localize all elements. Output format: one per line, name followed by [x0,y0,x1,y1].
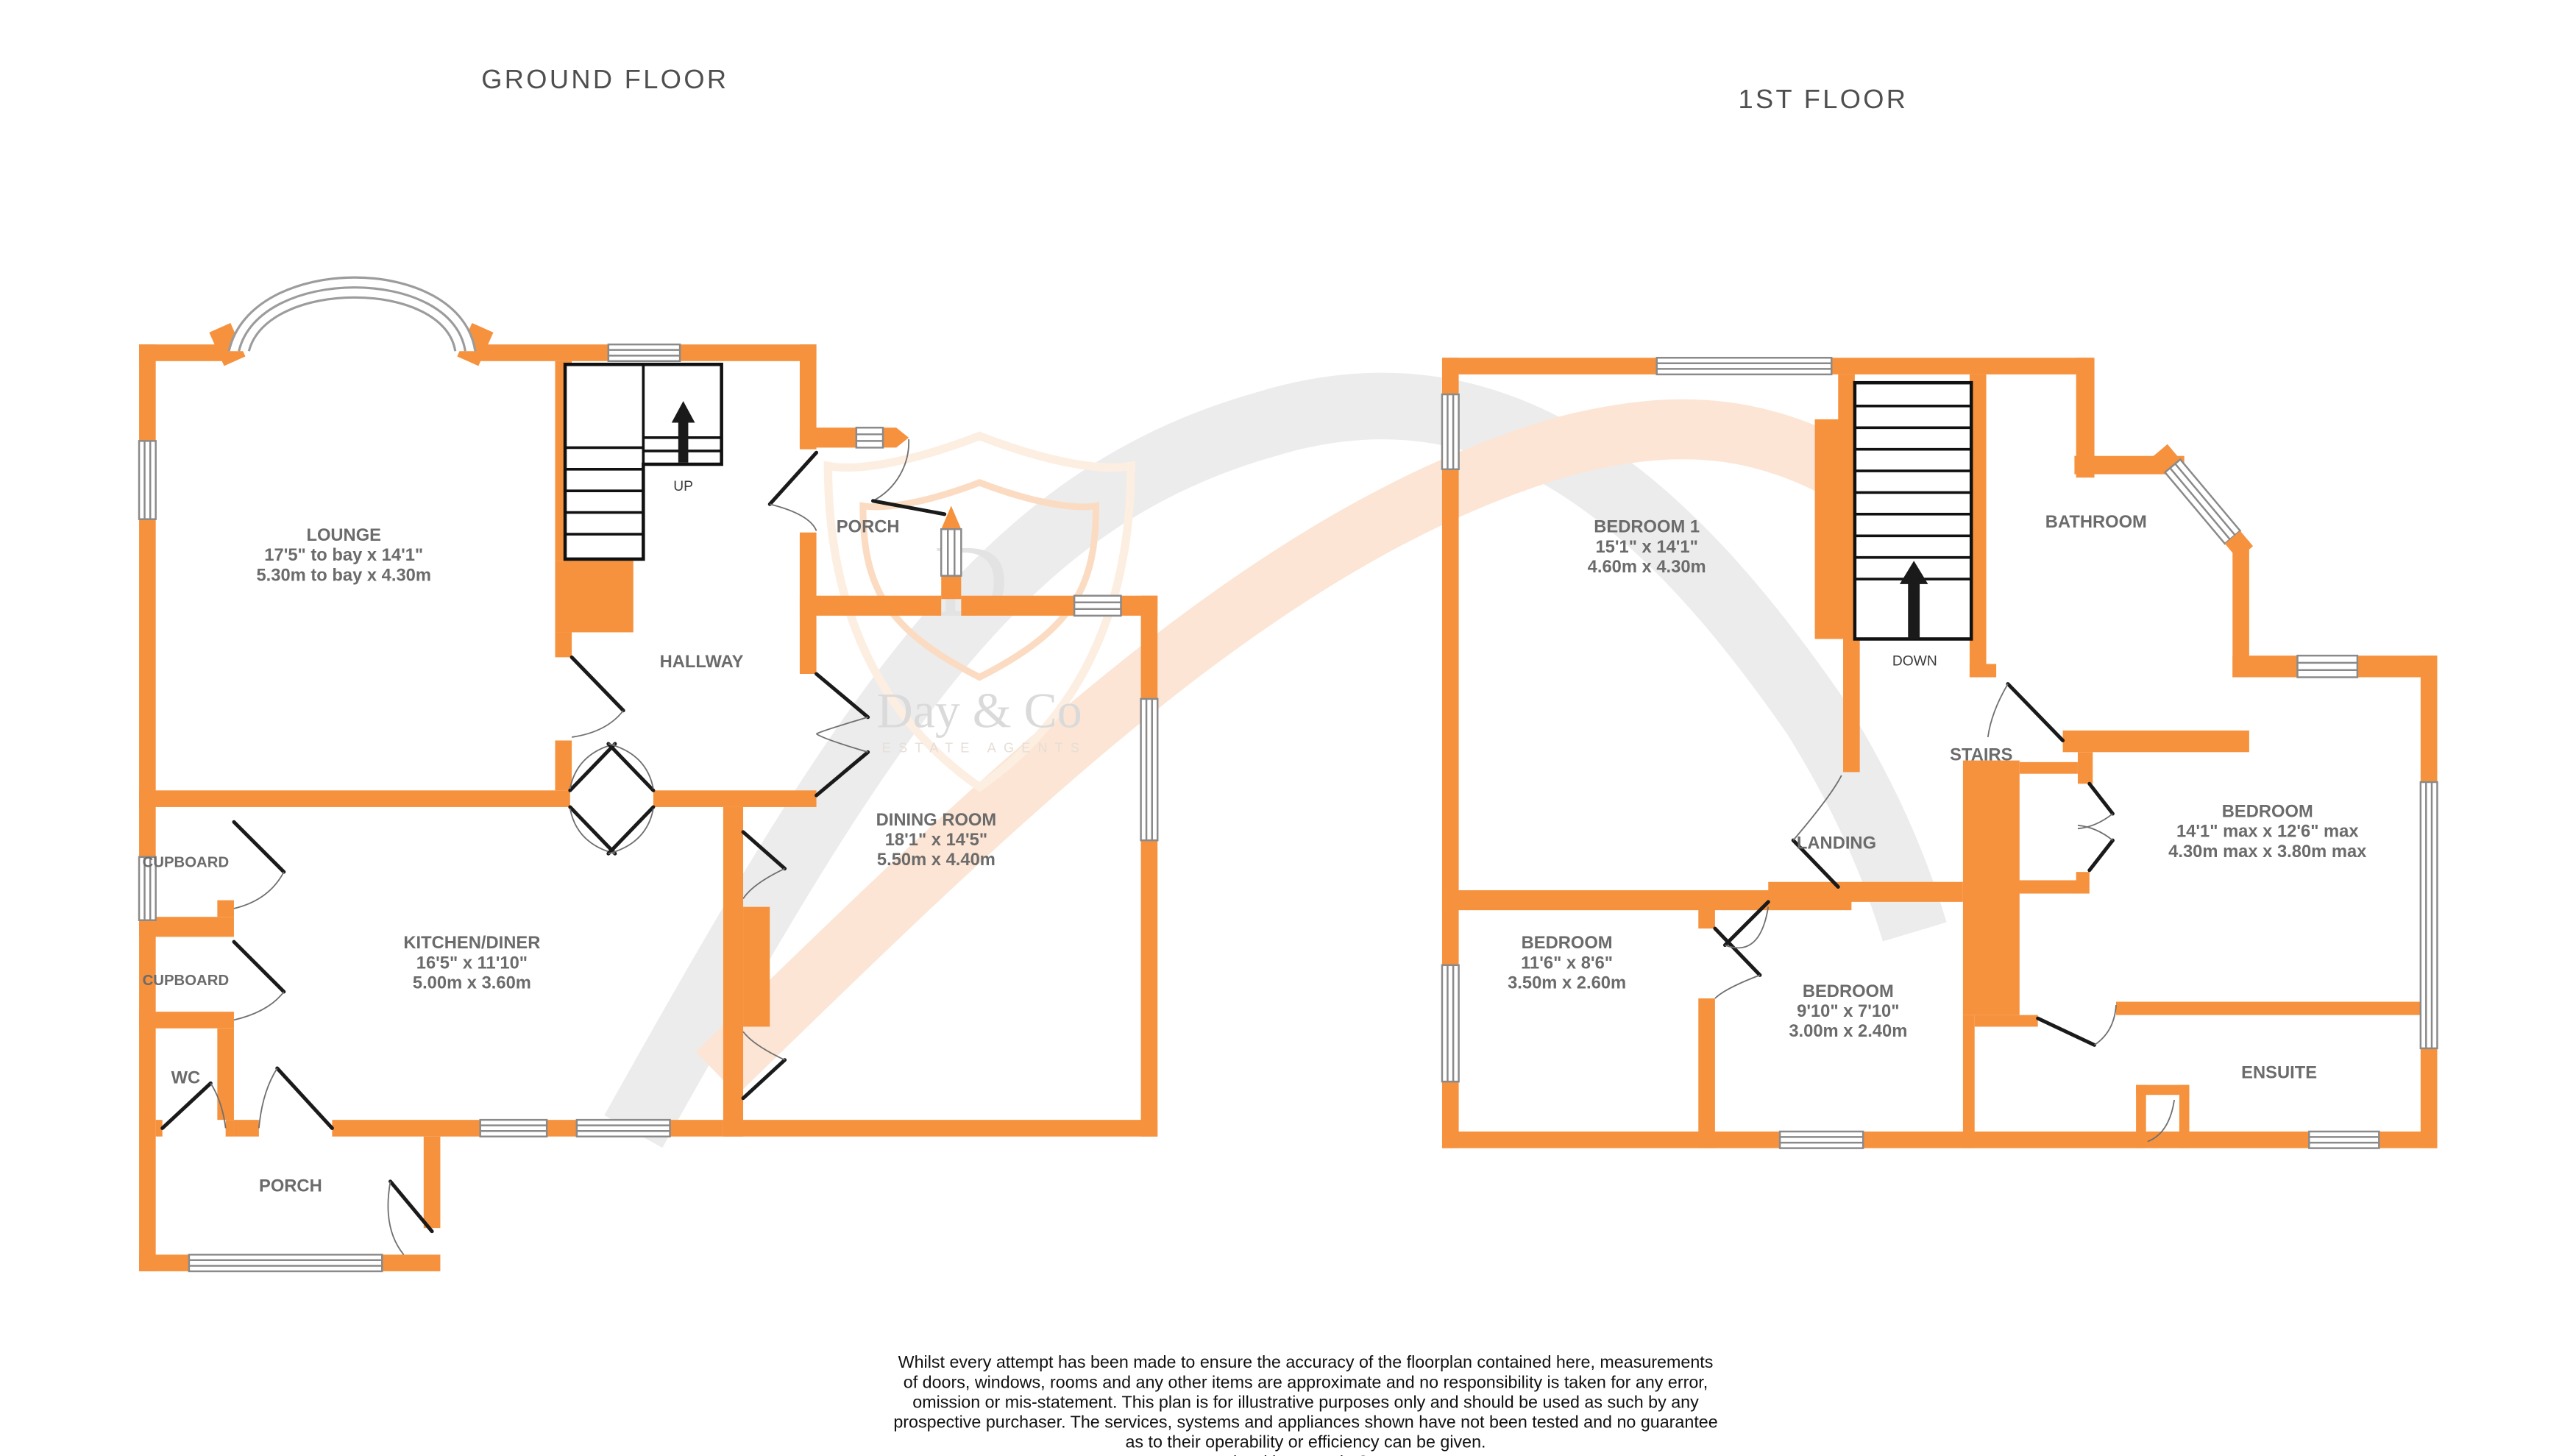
window-ensuite-bottom [2309,1132,2379,1148]
room-label-kitchen: KITCHEN/DINER [403,934,540,953]
window-kitchen-bottom-b [577,1120,670,1137]
room-dims-bedroom1-imperial: 15'1" x 14'1" [1595,538,1697,557]
room-dims-kitchen-imperial: 16'5" x 11'10" [416,953,528,973]
room-label-bathroom: BATHROOM [2045,513,2147,532]
disclaimer-line-1: Whilst every attempt has been made to en… [898,1352,1714,1371]
window-dining-right [1141,699,1158,840]
floorplan-page: D Day & Co ESTATE AGENTS GROUND FLOOR 1S… [0,0,2573,1456]
room-dims-bedroom-left-metric: 3.50m x 2.60m [1508,973,1626,992]
room-dims-dining-imperial: 18'1" x 14'5" [885,831,987,850]
room-dims-bedroom-right-metric: 4.30m max x 3.80m max [2168,842,2367,862]
bay-window [229,277,475,351]
room-dims-bedroom1-metric: 4.60m x 4.30m [1588,558,1706,577]
ground-floor-title: GROUND FLOOR [481,64,728,94]
window-bedroom-right-top [2297,656,2357,677]
room-label-landing: LANDING [1797,834,1876,853]
window-bedroom-left-side [1442,965,1459,1082]
room-label-hallway: HALLWAY [660,653,744,672]
disclaimer-line-2: of doors, windows, rooms and any other i… [904,1372,1708,1391]
room-dims-bedroom-right-imperial: 14'1" max x 12'6" max [2176,823,2359,842]
room-label-bedroom1: BEDROOM 1 [1594,518,1700,537]
disclaimer-line-4: prospective purchaser. The services, sys… [893,1413,1717,1432]
window-porch-jamb-a [856,427,883,447]
room-label-stairs: STAIRS [1950,746,2012,765]
stairs-down: DOWN [1855,383,1971,669]
footer-disclaimer: Whilst every attempt has been made to en… [893,1352,1717,1456]
room-dims-bedroom-left-imperial: 11'6" x 8'6" [1521,953,1613,973]
disclaimer-line-3: omission or mis-statement. This plan is … [912,1392,1699,1411]
room-dims-lounge-imperial: 17'5" to bay x 14'1" [264,546,423,565]
room-dims-kitchen-metric: 5.00m x 3.60m [413,973,531,992]
window-bedroom-right-side [2421,782,2438,1048]
room-label-porch-front: PORCH [837,518,900,537]
credit-line: Made with Metropix ©2025 [1204,1452,1408,1456]
stairs-down-label: DOWN [1892,654,1937,670]
room-label-wc: WC [171,1068,201,1087]
window-lounge-left [139,441,156,519]
window-bedroom1-left [1442,394,1459,469]
window-stairs-top [608,344,680,361]
room-label-lounge: LOUNGE [306,526,381,545]
stairs-up: UP [565,364,722,559]
disclaimer-line-5: as to their operability or efficiency ca… [1125,1432,1486,1452]
window-dining-top [1074,596,1121,616]
watermark-brand: Day & Co [877,683,1082,738]
room-dims-bedroom-middle-metric: 3.00m x 2.40m [1789,1022,1907,1041]
room-label-cupboard-2: CUPBOARD [143,973,230,989]
window-bedroom-middle-bottom [1780,1132,1863,1148]
room-label-bedroom-left: BEDROOM [1522,934,1613,953]
watermark: D Day & Co ESTATE AGENTS [634,406,1915,1132]
window-kitchen-bottom-a [480,1120,547,1137]
floorplan-canvas: D Day & Co ESTATE AGENTS GROUND FLOOR 1S… [0,0,2573,1456]
room-dims-lounge-metric: 5.30m to bay x 4.30m [256,566,430,585]
room-label-cupboard-1: CUPBOARD [143,854,230,870]
watermark-swoosh-gray [634,406,1915,1132]
window-bedroom1-top [1657,358,1831,374]
room-dims-dining-metric: 5.50m x 4.40m [877,850,996,870]
room-label-bedroom-middle: BEDROOM [1803,982,1894,1001]
first-floor-doors [1715,684,2174,1142]
room-dims-bedroom-middle-imperial: 9'10" x 7'10" [1797,1002,1899,1021]
room-label-bedroom-right: BEDROOM [2222,803,2313,822]
room-label-ensuite: ENSUITE [2241,1064,2317,1083]
window-porch-rear [189,1254,382,1271]
window-porch-jamb-b [941,529,961,575]
first-floor-title: 1ST FLOOR [1738,84,1908,114]
room-label-porch-rear: PORCH [259,1176,322,1196]
window-bathroom-diagonal [2152,444,2253,559]
stairs-up-label: UP [673,479,693,494]
watermark-tagline: ESTATE AGENTS [882,740,1087,755]
room-label-dining: DINING ROOM [876,811,997,830]
